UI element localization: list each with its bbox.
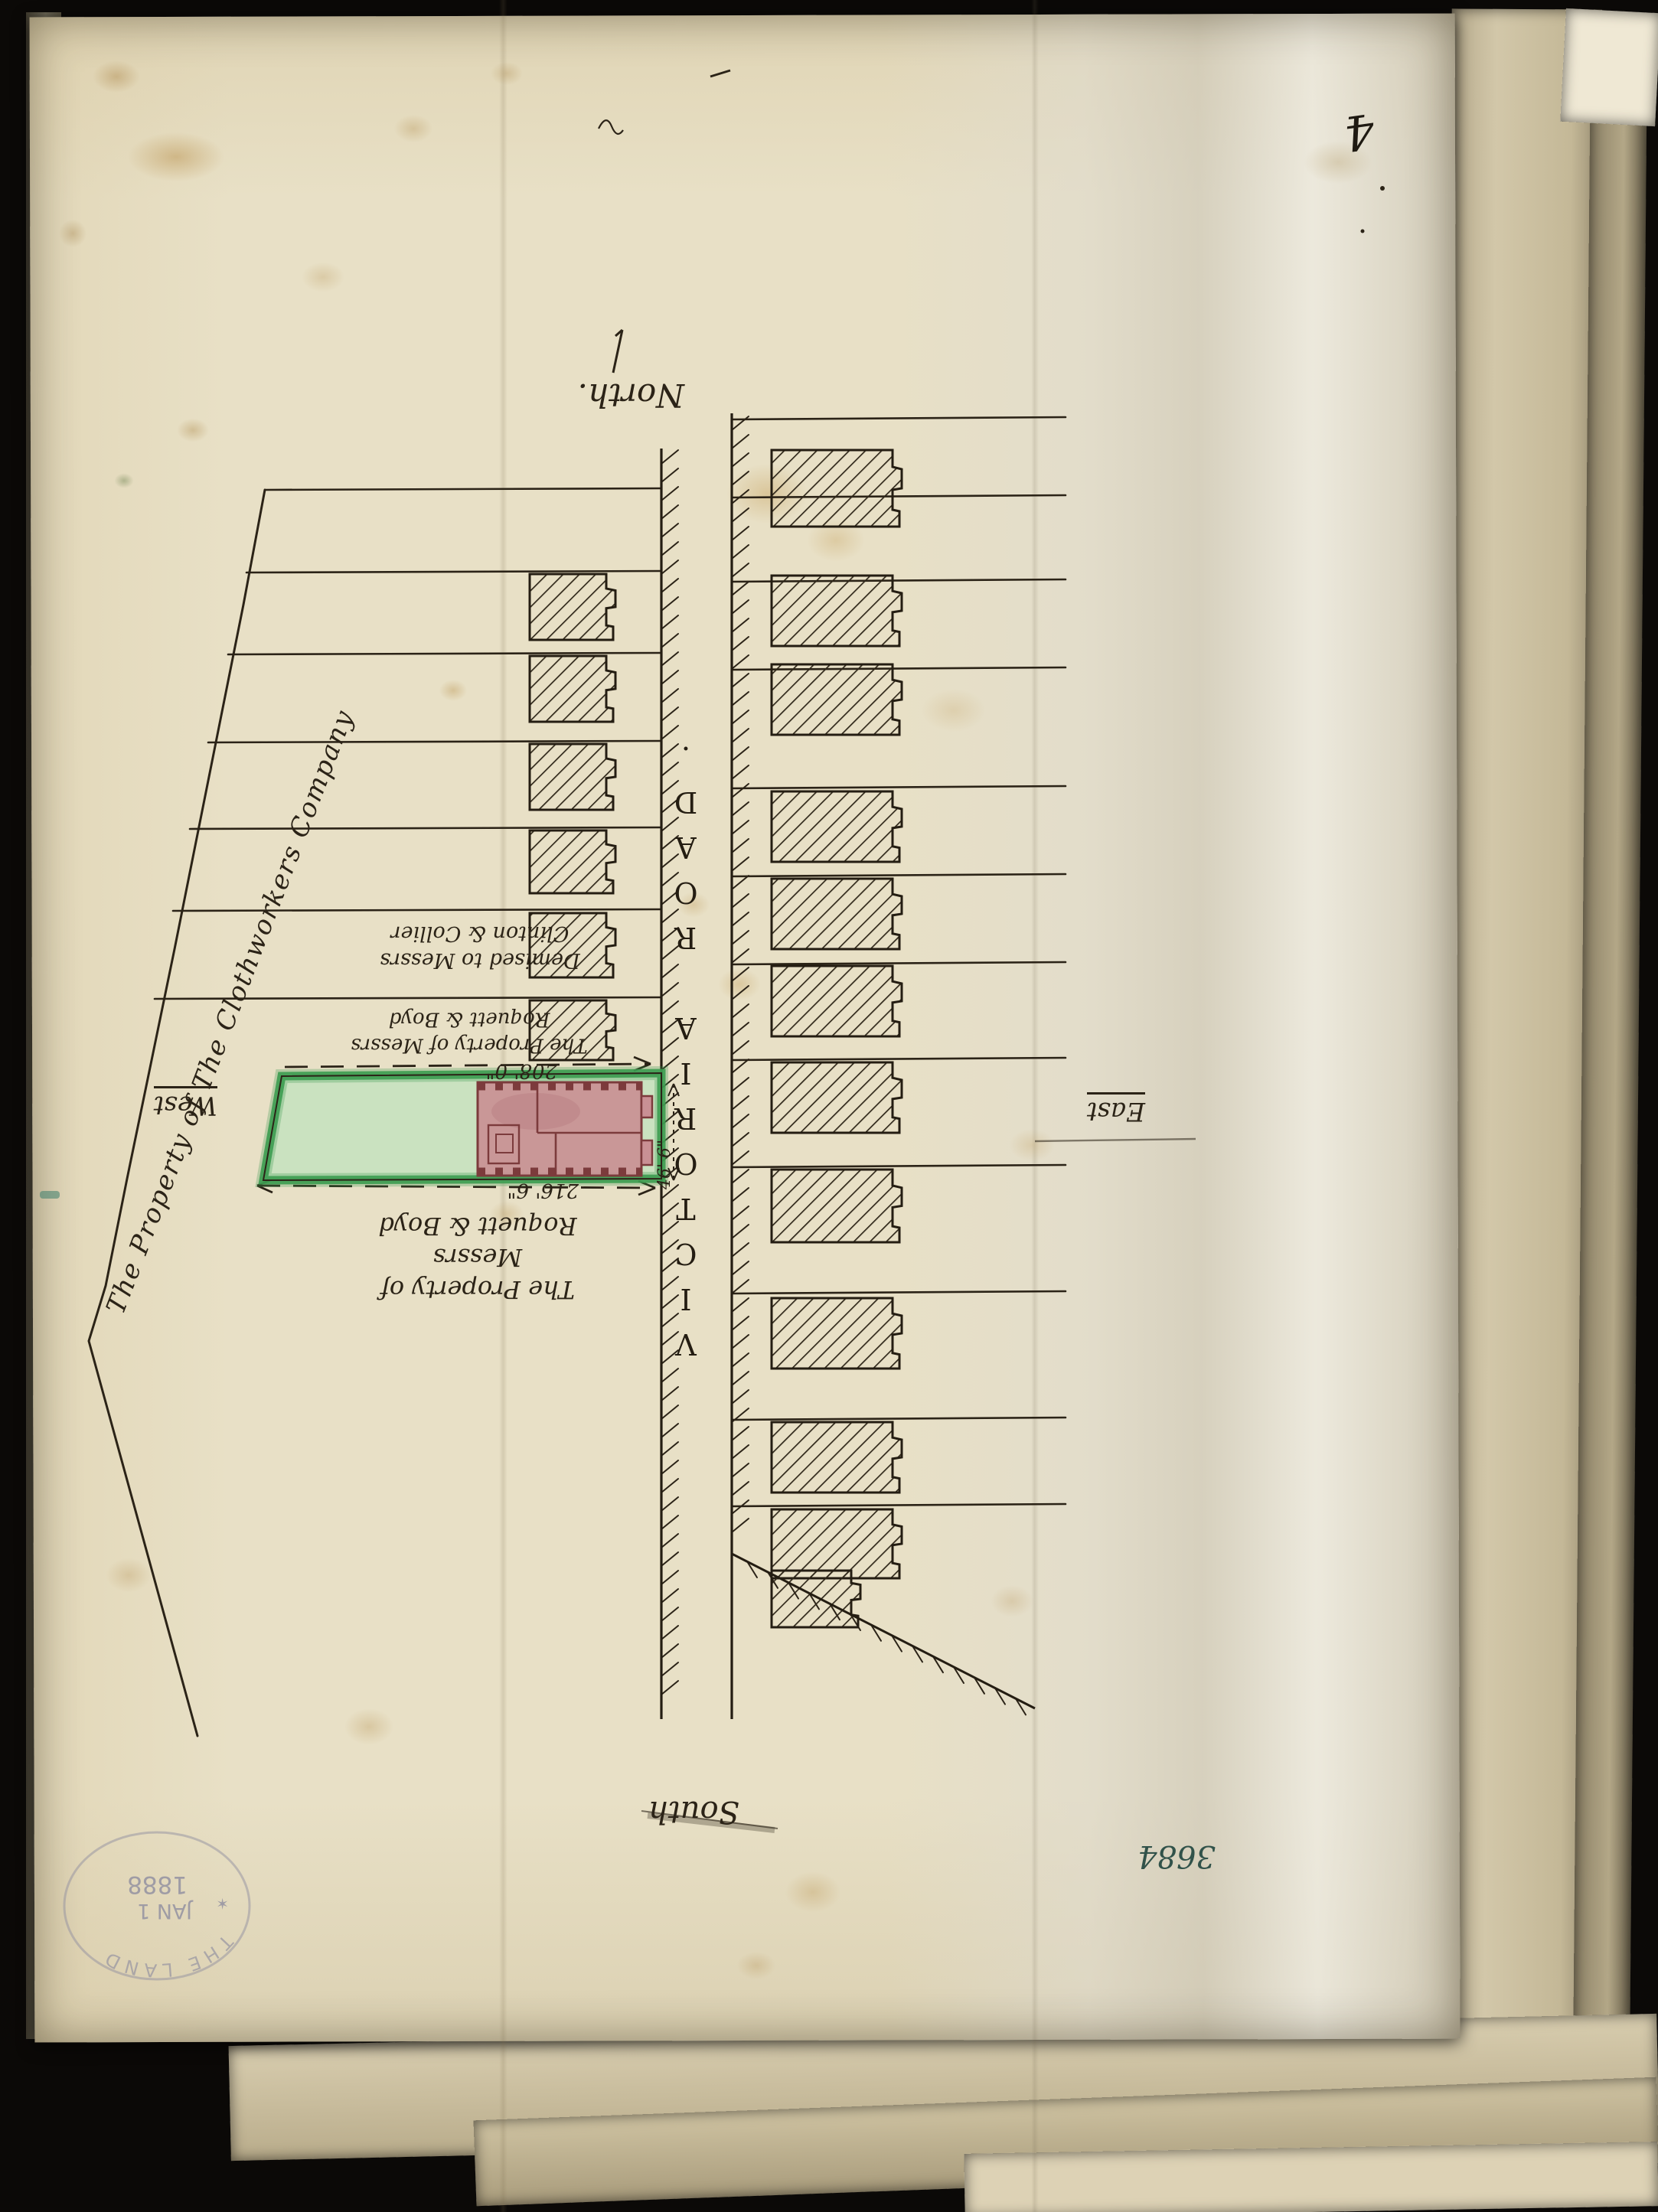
east-plot-line — [732, 1418, 1066, 1420]
road-hatch-tick — [661, 670, 678, 684]
road-hatch-tick — [732, 1151, 749, 1165]
road-hatch-tick — [732, 527, 749, 540]
west-plot-line — [265, 488, 661, 490]
road-hatch-tick — [732, 1390, 749, 1404]
mid-line2: Roquett & Boyd — [389, 1008, 550, 1031]
road-hatch-tick — [661, 1589, 678, 1603]
west-plot-line — [208, 741, 661, 742]
building-west-3 — [530, 744, 615, 810]
road-hatch-tick — [732, 1004, 749, 1018]
ink-smudge — [40, 1191, 60, 1199]
road-hatch-tick — [661, 1644, 678, 1658]
road-hatch-tick — [661, 1497, 678, 1511]
road-hatch-tick — [732, 839, 749, 853]
road-hatch-tick — [732, 453, 749, 467]
road-hatch-tick — [661, 1460, 678, 1474]
road-hatch-tick — [732, 1445, 749, 1459]
road-hatch-tick — [732, 508, 749, 522]
road-hatch-tick — [661, 1515, 678, 1529]
road-hatch-tick — [661, 560, 678, 574]
road-hatch-tick — [661, 524, 678, 537]
road-hatch-tick — [732, 1133, 749, 1147]
road-hatch-tick — [732, 986, 749, 1000]
road-hatch-tick — [732, 949, 749, 963]
road-hatch-tick — [661, 1681, 678, 1695]
road-hatch-tick — [732, 1225, 749, 1238]
road-hatch-tick — [732, 1519, 749, 1532]
building-west-4 — [530, 830, 615, 893]
scanned-plan-page: THE LAND ✶ JAN 1 1888 North. The Propert… — [0, 0, 1658, 2212]
ink-squiggle — [599, 120, 623, 134]
east-plot-line — [732, 874, 1066, 876]
building-east-4 — [772, 791, 902, 862]
road-hatch-tick — [661, 487, 678, 501]
road-hatch-tick — [732, 876, 749, 889]
road-hatch-tick — [661, 505, 678, 519]
road-hatch-tick — [732, 655, 749, 669]
road-hatch-tick — [661, 1534, 678, 1548]
road-hatch-tick — [661, 1552, 678, 1566]
compass-west-label: West — [126, 1090, 217, 1121]
pink-building-footprint — [478, 1082, 652, 1176]
road-hatch-tick — [661, 1387, 678, 1401]
road-hatch-tick — [732, 1170, 749, 1183]
east-plot-line — [732, 1504, 1066, 1506]
building-east-3 — [772, 664, 902, 735]
road-hatch-tick — [732, 1059, 749, 1073]
road-hatch-tick — [732, 1206, 749, 1220]
south-line1: The Property of Messrs — [380, 1243, 575, 1304]
road-hatch-tick — [732, 821, 749, 834]
road-hatch-tick — [732, 857, 749, 871]
road-hatch-tick — [732, 1114, 749, 1128]
road-hatch-tick — [732, 1096, 749, 1110]
road-hatch-tick — [732, 471, 749, 485]
east-plot-line — [732, 1058, 1066, 1060]
building-east-10 — [772, 1422, 902, 1493]
road-hatch-tick — [732, 967, 749, 981]
road-hatch-tick — [732, 1298, 749, 1312]
road-hatch-tick — [661, 579, 678, 592]
road-hatch-tick — [732, 1261, 749, 1275]
road-hatch-tick — [732, 765, 749, 779]
land-commission-stamp: THE LAND ✶ JAN 1 1888 — [64, 1832, 250, 1981]
road-hatch-tick — [661, 450, 678, 464]
north-side-measurement: 208' 0" — [419, 1059, 557, 1082]
road-hatch-tick — [732, 692, 749, 706]
mid-plot-owner-label: The Property of Messrs Roquett & Boyd — [351, 1006, 588, 1058]
road-hatch-tick — [661, 689, 678, 703]
road-hatch-tick — [732, 1482, 749, 1496]
road-hatch-tick — [732, 637, 749, 651]
road-hatch-tick — [661, 1424, 678, 1437]
road-hatch-tick — [732, 582, 749, 595]
east-plot-line — [732, 962, 1066, 964]
building-east-11 — [772, 1509, 902, 1578]
west-text: West — [154, 1086, 217, 1121]
road-hatch-tick — [732, 618, 749, 632]
east-plot-line — [732, 417, 1066, 419]
south-plot-owner-label: The Property of Messrs Roquett & Boyd — [332, 1209, 623, 1305]
building-east-9 — [772, 1298, 902, 1369]
road-hatch-tick — [732, 674, 749, 687]
building-east-2 — [772, 576, 902, 646]
svg-text:THE LAND: THE LAND — [98, 1930, 237, 1982]
building-east-8 — [772, 1170, 902, 1242]
plan-linework: THE LAND ✶ JAN 1 1888 — [0, 0, 1658, 2212]
handwritten-file-number: 3684 — [1101, 1838, 1216, 1874]
road-hatch-tick — [732, 1041, 749, 1055]
road-hatch-tick — [732, 729, 749, 742]
south-side-measurement: 216' 6" — [441, 1179, 579, 1202]
building-west-1 — [530, 574, 615, 640]
west-plot-line — [246, 571, 661, 573]
road-hatch-tick — [732, 931, 749, 945]
road-hatch-tick — [732, 802, 749, 816]
road-hatch-tick — [661, 634, 678, 648]
road-hatch-tick — [732, 1023, 749, 1036]
road-hatch-tick — [661, 1626, 678, 1639]
compass-marks — [599, 70, 1385, 1830]
road-hatch-tick — [732, 784, 749, 798]
building-east-1 — [772, 450, 902, 527]
west-plot-line — [190, 827, 661, 829]
demised-line2: Clinton & Collier — [391, 922, 570, 945]
west-plot-line — [228, 653, 661, 654]
road-hatch-tick — [732, 563, 749, 577]
east-plot-line — [1035, 1139, 1196, 1141]
frontage-measurement: 46' 6" — [655, 1090, 674, 1189]
compass-north-label: North. — [554, 377, 684, 414]
building-east-7 — [772, 1062, 902, 1133]
road-hatch-tick — [661, 1607, 678, 1621]
road-hatch-tick — [732, 1372, 749, 1385]
compass-east-label: East — [1053, 1096, 1145, 1127]
road-hatch-tick — [732, 545, 749, 559]
road-hatch-tick — [661, 1662, 678, 1676]
road-hatch-tick — [661, 707, 678, 721]
east-plot-line — [732, 1291, 1066, 1294]
south-line2: Roquett & Boyd — [378, 1212, 576, 1241]
road-hatch-tick — [732, 1427, 749, 1440]
road-hatch-tick — [732, 1078, 749, 1091]
compass-south-label: South — [609, 1794, 739, 1829]
stamp-date-line2: 1888 — [127, 1871, 188, 1898]
road-hatch-tick — [732, 747, 749, 761]
building-west-2 — [530, 656, 615, 722]
road-hatch-tick — [732, 1353, 749, 1367]
road-hatch-tick — [661, 542, 678, 556]
road-hatch-tick — [732, 1316, 749, 1330]
road-hatch-tick — [661, 652, 678, 666]
road-hatch-tick — [661, 1571, 678, 1584]
mid-line1: The Property of Messrs — [351, 1034, 587, 1057]
demised-line1: Demised to Messrs — [380, 948, 579, 972]
road-hatch-tick — [661, 1405, 678, 1419]
road-hatch-tick — [732, 1280, 749, 1294]
east-plot-line — [732, 1165, 1066, 1167]
victoria-road-label: VICTORIA ROAD. — [669, 817, 703, 1361]
west-plot-line — [173, 909, 661, 911]
road-hatch-tick — [661, 597, 678, 611]
road-hatch-tick — [661, 1479, 678, 1493]
stamp-arc-text: THE LAND — [98, 1930, 237, 1982]
road-hatch-tick — [732, 1335, 749, 1349]
road-hatch-tick — [732, 894, 749, 908]
road-hatch-tick — [732, 435, 749, 449]
demised-plot-label: Demised to Messrs Clinton & Collier — [354, 920, 606, 974]
stamp-date-line1: JAN 1 — [137, 1899, 194, 1923]
road-hatch-tick — [732, 1243, 749, 1257]
road-hatch-tick — [661, 1442, 678, 1456]
building-east-5 — [772, 879, 902, 949]
road-hatch-tick — [661, 615, 678, 629]
road-hatch-tick — [661, 1369, 678, 1382]
road-hatch-tick — [732, 600, 749, 614]
stamp-star: ✶ — [216, 1894, 229, 1913]
road-hatch-tick — [732, 912, 749, 926]
road-hatch-tick — [661, 468, 678, 482]
building-east-6 — [772, 966, 902, 1036]
road-hatch-tick — [732, 1463, 749, 1477]
road-hatch-tick — [732, 1188, 749, 1202]
road-hatch-tick — [732, 710, 749, 724]
building-east-12 — [772, 1571, 860, 1627]
east-plot-line — [732, 786, 1066, 788]
east-text: East — [1087, 1092, 1145, 1127]
